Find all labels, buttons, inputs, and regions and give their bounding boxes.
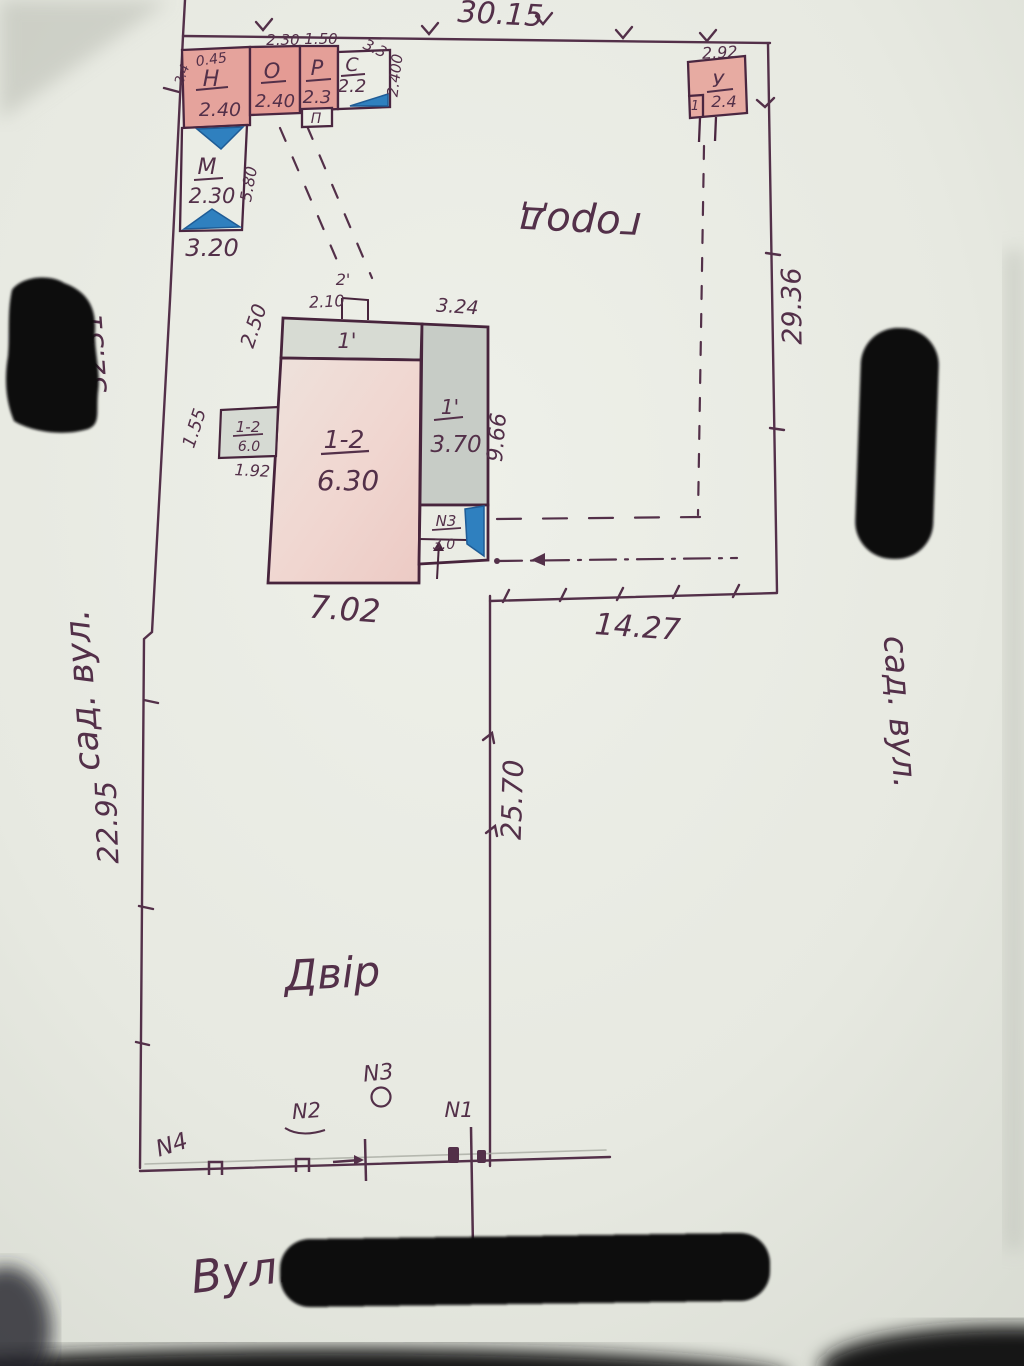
room-label: 1-2: [324, 425, 365, 454]
cell-p-value: 2.3: [303, 87, 332, 108]
wing-top-dim: 3.24: [436, 295, 480, 320]
gate-mark-4: [477, 1150, 486, 1163]
yard-label: Двір: [281, 947, 381, 1001]
veranda-label: 1': [337, 329, 356, 353]
redaction-left: [6, 278, 99, 433]
side-annex-value: 6.0: [238, 439, 260, 455]
shed-m-value: 2.30: [189, 184, 236, 208]
shed-m-bottom-dim: 3.20: [185, 234, 238, 262]
redaction-right: [854, 327, 940, 561]
paper-sheet: [0, 0, 1024, 1366]
cell-p-porch-label: П: [311, 111, 322, 127]
point-n2-label: N2: [291, 1098, 322, 1124]
annex-label: N3: [436, 512, 457, 530]
wing-label: 1': [441, 395, 459, 419]
side-annex-width: 1.92: [234, 460, 271, 481]
cell-s-value: 2.2: [338, 76, 367, 97]
shed-m-label: М: [198, 155, 217, 180]
cell-o-value: 2.40: [255, 91, 295, 112]
stake-n2: [365, 1139, 366, 1181]
photographed-site-plan: 0.45 2.4 Н 2.40 2.30 О 2.40 1.50 Р 2.3 П…: [0, 0, 1024, 1366]
annex-value: 3.0: [433, 537, 455, 553]
house-width-dim: 7.02: [308, 588, 382, 631]
gate-mark-3: [448, 1147, 459, 1163]
room-area: 6.30: [317, 464, 379, 497]
point-n3-label: N3: [362, 1060, 395, 1088]
cell-p-label: Р: [311, 56, 324, 80]
shed-u-corner-label: 1: [691, 99, 699, 114]
wing-area: 3.70: [430, 432, 481, 458]
dim-middle: 25.70: [495, 759, 531, 840]
paper-background: [0, 0, 1024, 1366]
garden-label: город: [517, 197, 642, 249]
shed-u-label: У: [712, 70, 725, 92]
side-annex-label: 1-2: [236, 418, 261, 436]
dim-top-width: 30.15: [457, 0, 545, 34]
porch-width: 2.10: [308, 291, 345, 312]
site-plan-svg: 0.45 2.4 Н 2.40 2.30 О 2.40 1.50 Р 2.3 П…: [0, 0, 1024, 1366]
shed-u-top-dim: 2.92: [701, 42, 738, 63]
dim-left-lower: 22.95: [89, 780, 126, 864]
dim-garden-bottom: 14.27: [594, 607, 682, 648]
cell-n-value: 2.40: [199, 99, 241, 121]
cell-s-label: С: [345, 54, 359, 76]
porch-label: 2': [336, 270, 351, 289]
redaction-bottom: [280, 1233, 771, 1308]
cell-o-top-dim: 2.30: [266, 31, 299, 49]
dashed-line-dot: [494, 558, 500, 564]
shed-u-value: 2.4: [711, 92, 736, 111]
house-height-dim: 9.66: [483, 412, 512, 463]
edge-shade-right: [1004, 250, 1024, 1250]
dim-right: 29.36: [776, 267, 808, 345]
cell-p-top-dim: 1.50: [304, 30, 337, 48]
cell-o-label: О: [264, 59, 281, 83]
point-n1-label: N1: [444, 1098, 473, 1122]
